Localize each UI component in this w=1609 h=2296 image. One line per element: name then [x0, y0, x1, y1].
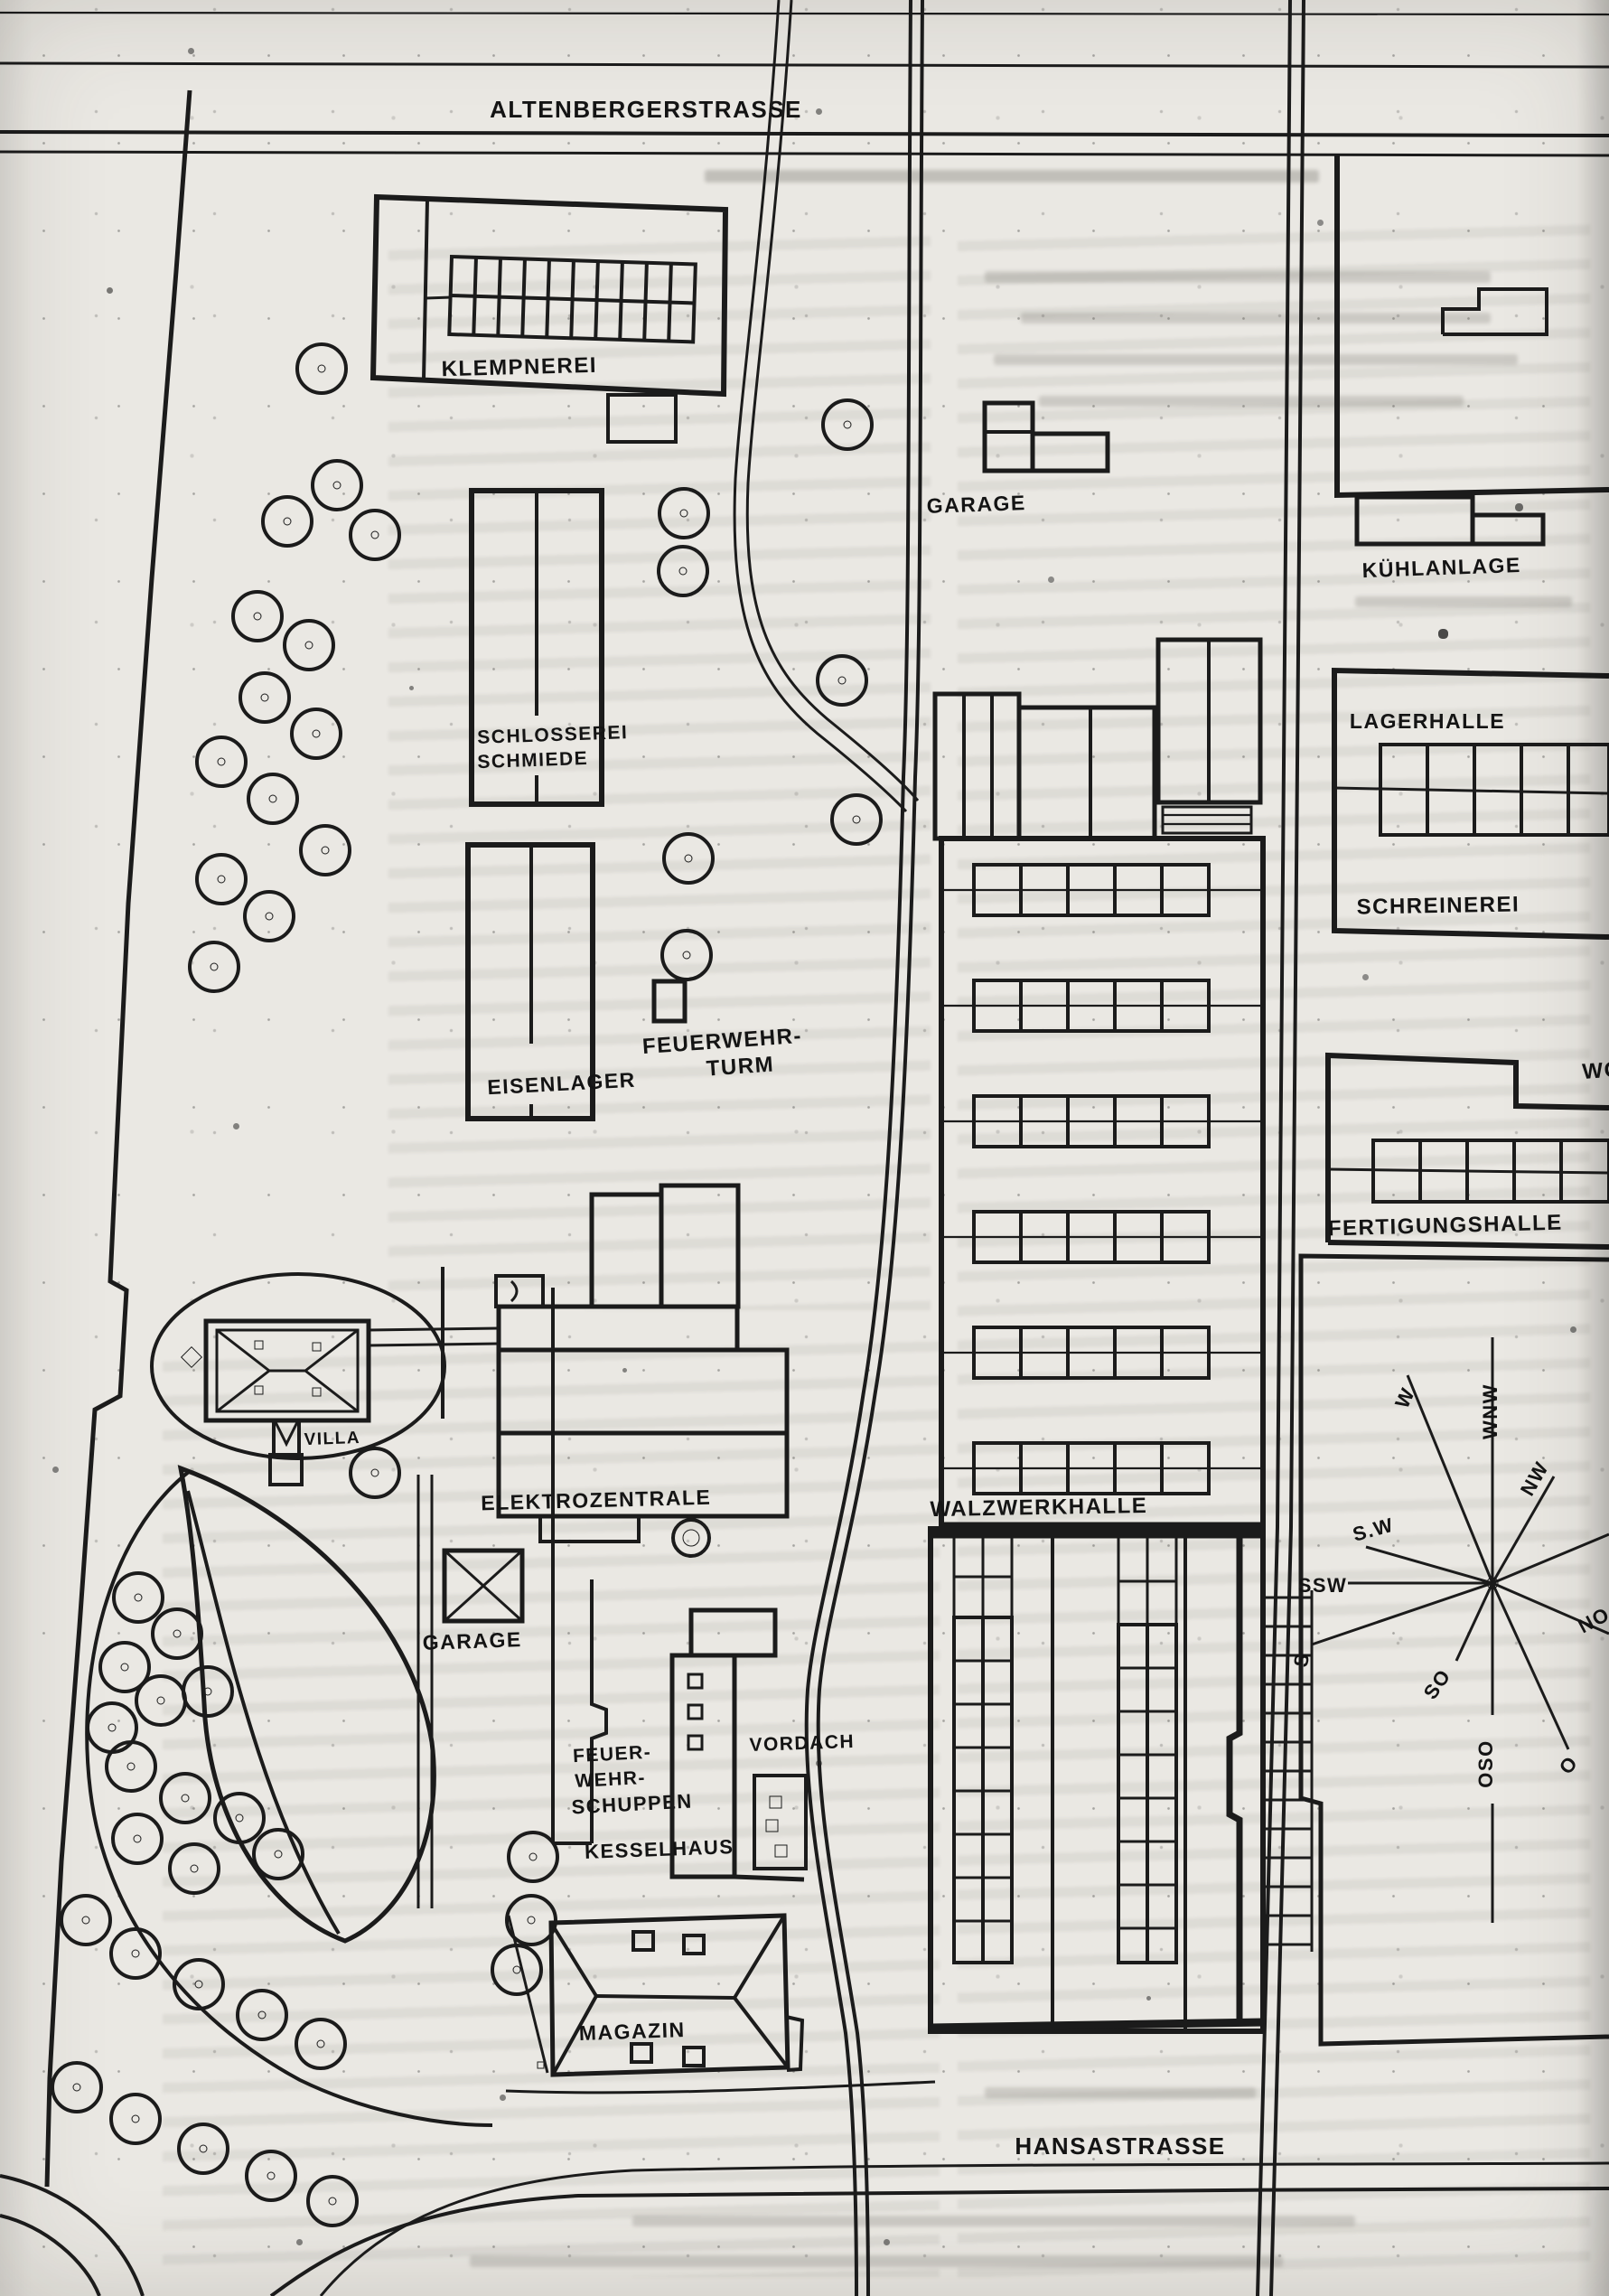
trees	[52, 344, 881, 2226]
label-fertigungshalle: FERTIGUNGSHALLE	[1328, 1211, 1563, 1242]
building-magazin: MAGAZIN	[509, 1916, 802, 2075]
building-schlosserei-schmiede: SCHLOSSEREI SCHMIEDE	[472, 491, 629, 804]
label-vordach: VORDACH	[749, 1731, 855, 1756]
compass-label-w: W	[1390, 1383, 1419, 1411]
walzwerkhalle-bay-lines	[941, 890, 1263, 1468]
label-feuerwehrturm-1: FEUERWEHR-	[641, 1024, 803, 1059]
building-elektrozentrale: ELEKTROZENTRALE	[481, 1185, 787, 1556]
building-feuerwehrturm: FEUERWEHR- TURM	[641, 981, 803, 1082]
label-feuerwehrschuppen-3: SCHUPPEN	[571, 1790, 693, 1819]
compass-label-oso: OSO	[1474, 1739, 1497, 1787]
label-schmiede: SCHMIEDE	[477, 748, 589, 773]
compass-label-so: SO	[1419, 1664, 1455, 1703]
building-garage-north: GARAGE	[926, 403, 1108, 518]
compass-label-o: O	[1555, 1751, 1583, 1778]
klempnerei-skylight-grid	[449, 257, 696, 342]
label-feuerwehrturm-2: TURM	[706, 1052, 775, 1081]
walzwerkhalle-skylight-bands	[974, 865, 1209, 1494]
street-hansastrasse: HANSASTRASSE	[0, 2082, 1609, 2296]
compass-label-nw: NW	[1516, 1457, 1553, 1500]
label-villa: VILLA	[304, 1429, 360, 1449]
building-lagerhalle-schreinerei: LAGERHALLE SCHREINEREI	[1334, 670, 1609, 937]
building-kuehlanlage: KÜHLANLAGE	[1337, 155, 1609, 582]
compass-rose: W WNW NW S.W SSW S SO OSO O NO	[1289, 1337, 1609, 1923]
label-garage-north: GARAGE	[926, 491, 1026, 518]
label-feuerwehrschuppen-1: FEUER-	[573, 1742, 652, 1767]
building-southeast	[1301, 1256, 1609, 2044]
compass-label-ssw: SSW	[1298, 1574, 1348, 1597]
street-label-hansastrasse: HANSASTRASSE	[1015, 2132, 1225, 2160]
compass-label-s: S	[1289, 1651, 1314, 1669]
building-walzwerkhalle: WALZWERKHALLE	[930, 839, 1263, 1525]
street-altenbergerstrasse: ALTENBERGERSTRASSE	[0, 13, 1609, 155]
label-eisenlager: EISENLAGER	[487, 1068, 637, 1100]
villa-and-garden: VILLA	[87, 1267, 499, 2125]
label-schreinerei: SCHREINEREI	[1356, 892, 1520, 919]
building-garage-south: GARAGE	[422, 1551, 522, 1654]
label-schlosserei: SCHLOSSEREI	[477, 722, 629, 748]
building-klempnerei: KLEMPNEREI	[373, 197, 725, 442]
building-lower-hall	[931, 1529, 1263, 2031]
building-central-upper	[935, 640, 1260, 839]
label-klempnerei: KLEMPNEREI	[441, 353, 597, 382]
label-elektrozentrale: ELEKTROZENTRALE	[481, 1485, 712, 1515]
label-lagerhalle: LAGERHALLE	[1350, 709, 1505, 733]
siding-wall	[1230, 1529, 1239, 2026]
label-garage-south: GARAGE	[422, 1627, 522, 1654]
lower-hall-skylight-1	[954, 1529, 1012, 1963]
label-magazin: MAGAZIN	[578, 2018, 686, 2045]
street-label-altenbergerstrasse: ALTENBERGERSTRASSE	[490, 96, 802, 123]
label-feuerwehrschuppen-2: WEHR-	[575, 1767, 647, 1792]
label-kesselhaus: KESSELHAUS	[585, 1835, 734, 1863]
building-fertigungshalle: FERTIGUNGSHALLE WO	[1328, 1055, 1609, 1247]
compass-label-wnw: WNW	[1479, 1383, 1501, 1439]
villa-entrance-marker	[182, 1347, 202, 1368]
compass-rays	[1312, 1337, 1609, 1923]
site-plan-drawing: ALTENBERGERSTRASSE HANSASTRASSE	[0, 0, 1609, 2296]
label-walzwerkhalle: WALZWERKHALLE	[930, 1494, 1147, 1522]
compass-label-sw: S.W	[1351, 1513, 1397, 1546]
scanned-site-plan: ALTENBERGERSTRASSE HANSASTRASSE	[0, 0, 1609, 2296]
label-wohnhaus-fragment: WO	[1582, 1057, 1609, 1084]
building-eisenlager: EISENLAGER	[468, 845, 636, 1119]
label-kuehlanlage: KÜHLANLAGE	[1361, 553, 1521, 582]
lower-hall-skylight-2	[1118, 1529, 1176, 1963]
